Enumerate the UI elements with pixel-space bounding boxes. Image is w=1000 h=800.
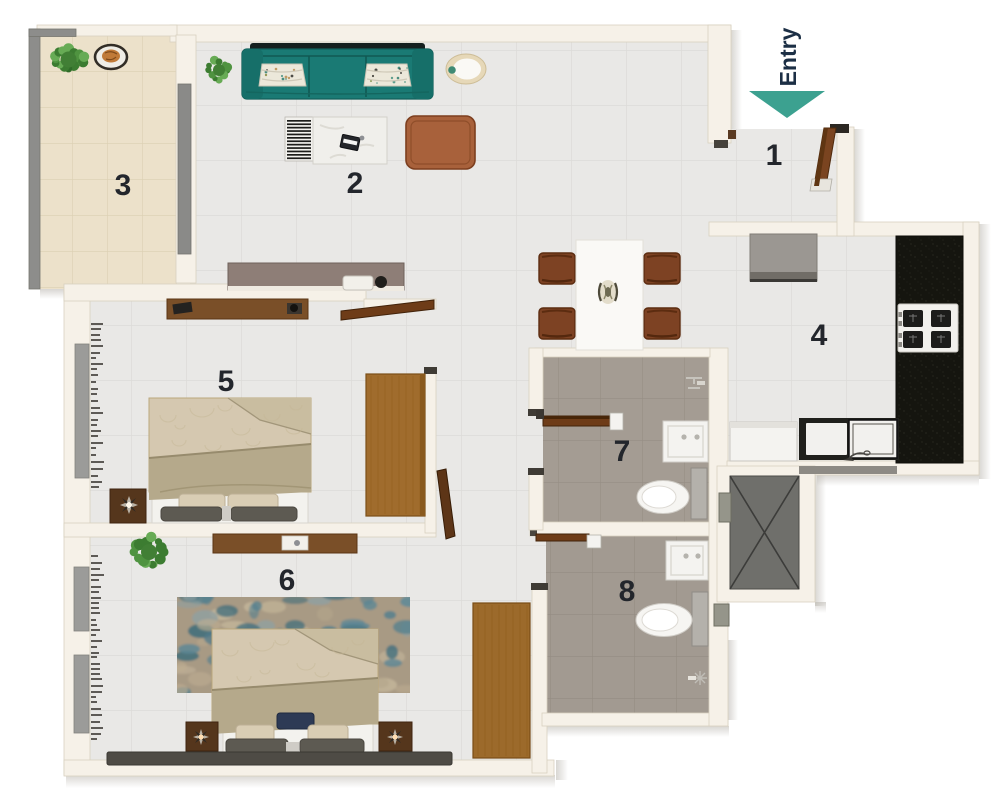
svg-text:5: 5	[218, 365, 235, 398]
svg-text:3: 3	[115, 169, 132, 202]
svg-text:8: 8	[619, 575, 636, 608]
svg-text:7: 7	[614, 435, 631, 468]
svg-text:6: 6	[279, 564, 296, 597]
svg-text:2: 2	[347, 167, 364, 200]
svg-text:1: 1	[766, 139, 783, 172]
svg-text:4: 4	[811, 319, 828, 352]
svg-text:Entry: Entry	[775, 27, 801, 86]
